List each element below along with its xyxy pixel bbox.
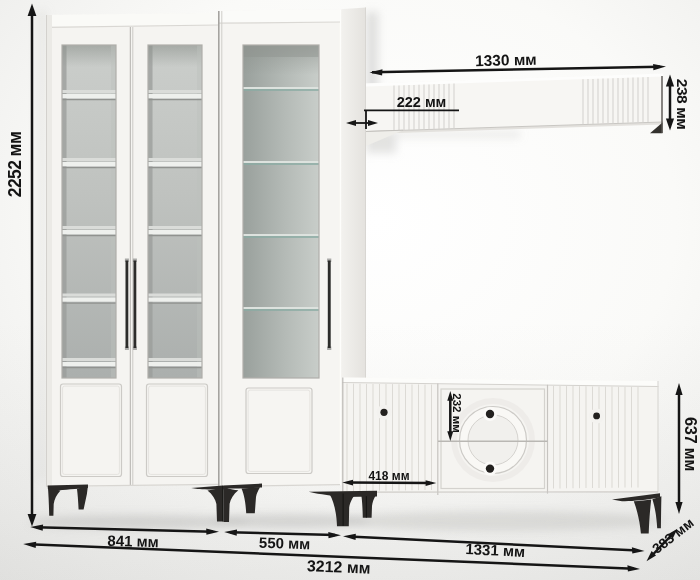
- svg-text:222 мм: 222 мм: [397, 94, 447, 110]
- svg-text:550 мм: 550 мм: [259, 534, 311, 552]
- svg-text:418 мм: 418 мм: [368, 469, 409, 483]
- svg-text:2252 мм: 2252 мм: [5, 132, 25, 197]
- svg-text:841 мм: 841 мм: [107, 532, 159, 550]
- svg-text:1331 мм: 1331 мм: [465, 540, 525, 560]
- svg-text:637 мм: 637 мм: [682, 417, 700, 471]
- svg-text:238 мм: 238 мм: [674, 79, 691, 130]
- svg-text:1330 мм: 1330 мм: [475, 51, 537, 69]
- svg-text:3212 мм: 3212 мм: [307, 557, 371, 576]
- svg-text:232 мм: 232 мм: [451, 393, 463, 432]
